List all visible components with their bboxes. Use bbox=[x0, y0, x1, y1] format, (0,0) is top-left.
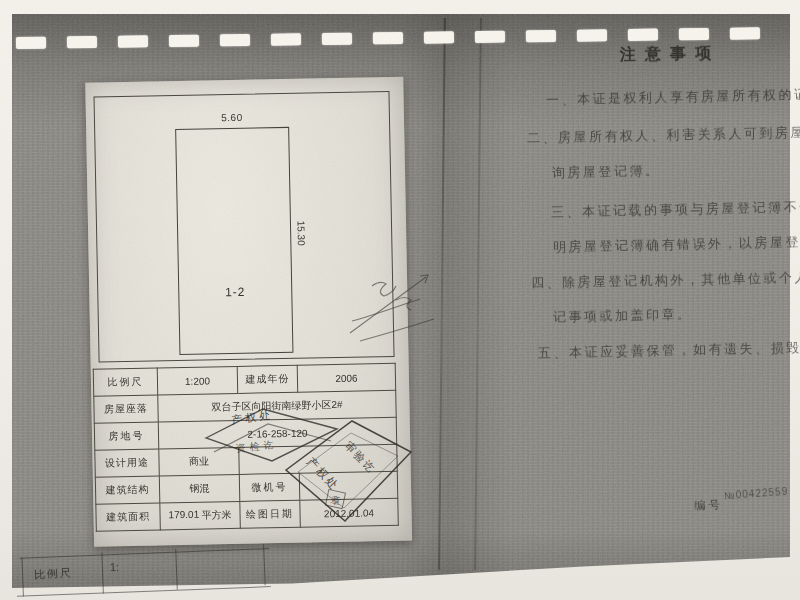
perforation-dash bbox=[475, 31, 505, 43]
table-label-floor-area: 建筑面积 bbox=[96, 503, 161, 531]
table-value-floor-area: 179.01 平方米 bbox=[160, 501, 241, 530]
perforation-dash bbox=[679, 28, 709, 40]
dimension-height-label: 15.30 bbox=[295, 218, 307, 248]
room-unit-label: 1-2 bbox=[178, 284, 292, 300]
floorplan-sheet: 5.60 15.30 1-2 比例尺 1:200 建成年份 2006 房屋座落 … bbox=[85, 77, 412, 547]
notice-title: 注意事项 bbox=[620, 43, 720, 66]
table-cell-empty bbox=[239, 444, 397, 474]
perforation-dash bbox=[373, 32, 403, 44]
perforation-dash bbox=[424, 31, 454, 43]
table-label-scale: 比例尺 bbox=[93, 368, 158, 396]
perforation-dash bbox=[577, 29, 607, 41]
table-label-structure: 建筑结构 bbox=[95, 476, 160, 504]
table-label-computer-no: 微机号 bbox=[239, 473, 300, 501]
attributes-table: 比例尺 1:200 建成年份 2006 房屋座落 双台子区向阳街南绿野小区2# … bbox=[93, 363, 399, 532]
table-value-drawing-date: 2012.01.04 bbox=[300, 498, 399, 527]
ghost-scale-label: 比例尺 bbox=[34, 566, 74, 582]
table-value-designed-use: 商业 bbox=[159, 447, 240, 476]
table-row: 建筑面积 179.01 平方米 绘图日期 2012.01.04 bbox=[96, 498, 398, 531]
notice-line: 询房屋登记簿。 bbox=[552, 162, 661, 182]
floor-area-unit: 平方米 bbox=[201, 508, 231, 523]
table-value-year-built: 2006 bbox=[297, 363, 396, 392]
table-label-parcel-no: 房地号 bbox=[94, 422, 159, 450]
notice-line: 记事项或加盖印章。 bbox=[553, 306, 693, 327]
perforation-dash bbox=[628, 29, 658, 41]
floor-area-number: 179.01 bbox=[168, 509, 199, 524]
table-label-drawing-date: 绘图日期 bbox=[240, 500, 301, 528]
table-label-location: 房屋座落 bbox=[94, 395, 159, 423]
table-value-computer-no bbox=[299, 471, 398, 500]
perforation-dash bbox=[730, 27, 760, 39]
dimension-width-label: 5.60 bbox=[175, 111, 289, 124]
ghost-footer-table: 比例尺 1: bbox=[13, 540, 271, 600]
floorplan-drawing-frame: 5.60 15.30 1-2 bbox=[94, 91, 395, 363]
perforation-dash bbox=[322, 33, 352, 45]
perforation-dash bbox=[67, 36, 97, 48]
table-value-structure: 钢混 bbox=[159, 474, 240, 503]
serial-number-label: 编号 bbox=[694, 497, 724, 513]
perforation-dash bbox=[526, 30, 556, 42]
ghost-scale-value: 1: bbox=[110, 561, 120, 573]
scanned-property-certificate-photo: 注意事项 一、本证是权利人享有房屋所有权的证明。 二、房屋所有权人、利害关系人可… bbox=[0, 0, 800, 600]
table-label-designed-use: 设计用途 bbox=[95, 449, 160, 477]
perforation-dash bbox=[220, 34, 250, 46]
table-label-year-built: 建成年份 bbox=[237, 365, 298, 393]
perforation-dash bbox=[118, 35, 148, 47]
perforation-dash bbox=[16, 37, 46, 49]
room-outline bbox=[175, 127, 293, 355]
perforation-dash bbox=[271, 33, 301, 45]
table-value-scale: 1:200 bbox=[157, 366, 238, 395]
perforation-dash bbox=[169, 35, 199, 47]
